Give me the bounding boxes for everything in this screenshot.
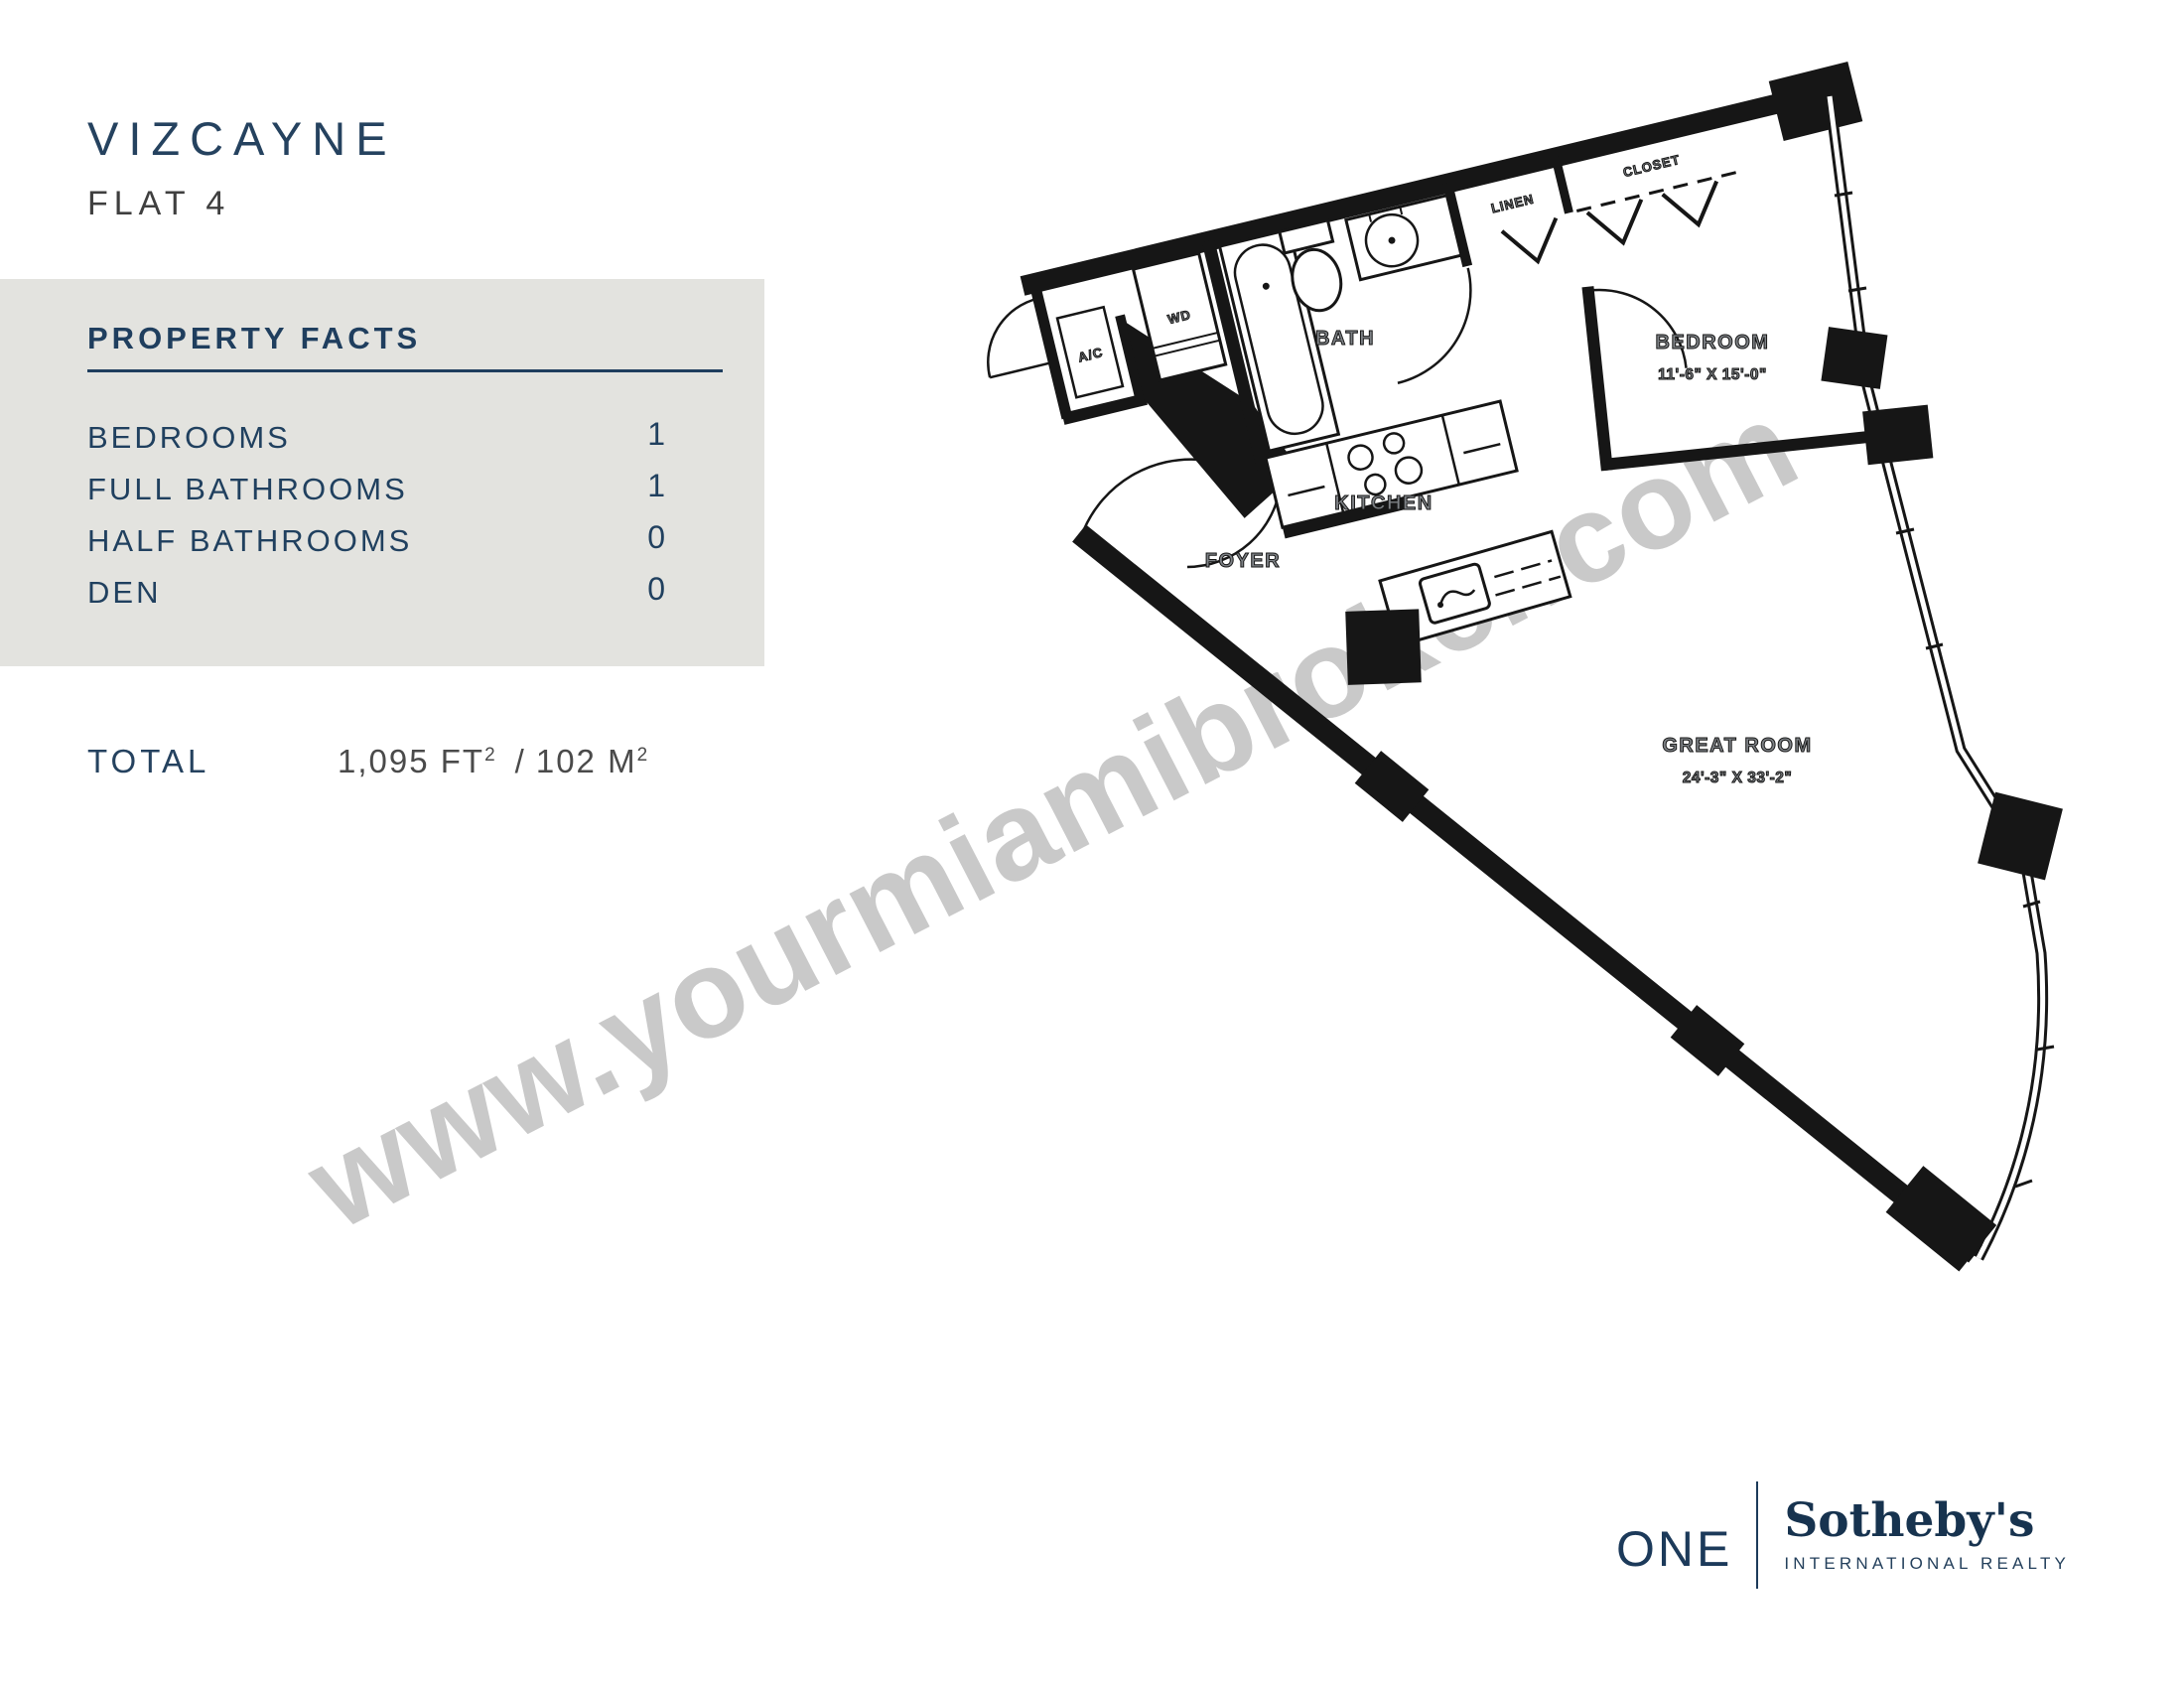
facts-label: FULL BATHROOMS xyxy=(87,472,408,507)
total-label: TOTAL xyxy=(87,743,209,780)
ac-closet xyxy=(983,271,1147,433)
window-wall xyxy=(1830,96,2054,1258)
logo-divider xyxy=(1756,1481,1758,1589)
total-sqm: 102 xyxy=(536,743,597,779)
total-sqm-sup: 2 xyxy=(637,745,650,766)
closet-label: CLOSET xyxy=(1621,152,1682,180)
property-facts-title: PROPERTY FACTS xyxy=(87,321,421,356)
total-sqft: 1,095 xyxy=(338,743,430,779)
logo-brand-text: Sotheby's xyxy=(1784,1496,2070,1545)
great-room-label: GREAT ROOM xyxy=(1662,735,1812,757)
bedroom-closet xyxy=(1576,171,1754,252)
facts-row-half-bathrooms: HALF BATHROOMS 0 xyxy=(87,523,665,575)
total-sqft-unit: FT xyxy=(441,743,484,779)
foyer-label: FOYER xyxy=(1205,550,1281,572)
flyer-page: VIZCAYNE FLAT 4 PROPERTY FACTS BEDROOMS … xyxy=(0,0,2184,1688)
facts-value: 0 xyxy=(606,571,665,608)
facts-label: BEDROOMS xyxy=(87,420,291,456)
logo-subtitle-text: INTERNATIONAL REALTY xyxy=(1784,1554,2070,1574)
total-sqm-unit: M xyxy=(608,743,637,779)
facts-value: 0 xyxy=(606,519,665,556)
facts-label: HALF BATHROOMS xyxy=(87,523,412,559)
total-value: 1,095 FT2/102 M2 xyxy=(338,743,649,780)
diagonal-wall xyxy=(1079,533,1996,1272)
property-facts-table: BEDROOMS 1 FULL BATHROOMS 1 HALF BATHROO… xyxy=(87,420,665,627)
property-facts-underline xyxy=(87,369,723,372)
facts-row-full-bathrooms: FULL BATHROOMS 1 xyxy=(87,472,665,523)
logo-one-text: ONE xyxy=(1616,1492,1732,1578)
facade-column xyxy=(1821,327,2063,880)
corner-column xyxy=(1769,62,1863,141)
facts-row-den: DEN 0 xyxy=(87,575,665,627)
kitchen-label: KITCHEN xyxy=(1334,492,1433,514)
facts-row-bedrooms: BEDROOMS 1 xyxy=(87,420,665,472)
bath-label: BATH xyxy=(1315,328,1375,350)
unit-title: FLAT 4 xyxy=(87,185,230,223)
bedroom-dims: 11'-6" X 15'-0" xyxy=(1658,366,1767,383)
building-title: VIZCAYNE xyxy=(87,111,397,166)
bedroom-label: BEDROOM xyxy=(1656,332,1770,353)
great-room-dims: 24'-3" X 33'-2" xyxy=(1683,770,1793,786)
total-area-row: TOTAL 1,095 FT2/102 M2 xyxy=(87,743,782,780)
logo-brand-block: Sotheby's INTERNATIONAL REALTY xyxy=(1784,1496,2070,1574)
facts-label: DEN xyxy=(87,575,161,611)
facts-value: 1 xyxy=(606,468,665,504)
total-sqft-sup: 2 xyxy=(484,745,497,766)
total-divider: / xyxy=(497,743,536,779)
kitchen-island-sink xyxy=(1322,531,1581,702)
brokerage-logo: ONE Sotheby's INTERNATIONAL REALTY xyxy=(1616,1481,2070,1589)
property-facts-box: PROPERTY FACTS BEDROOMS 1 FULL BATHROOMS… xyxy=(0,279,764,666)
facts-value: 1 xyxy=(606,416,665,453)
floor-plan: A/C WD xyxy=(983,55,2090,1316)
linen-label: LINEN xyxy=(1490,192,1536,216)
